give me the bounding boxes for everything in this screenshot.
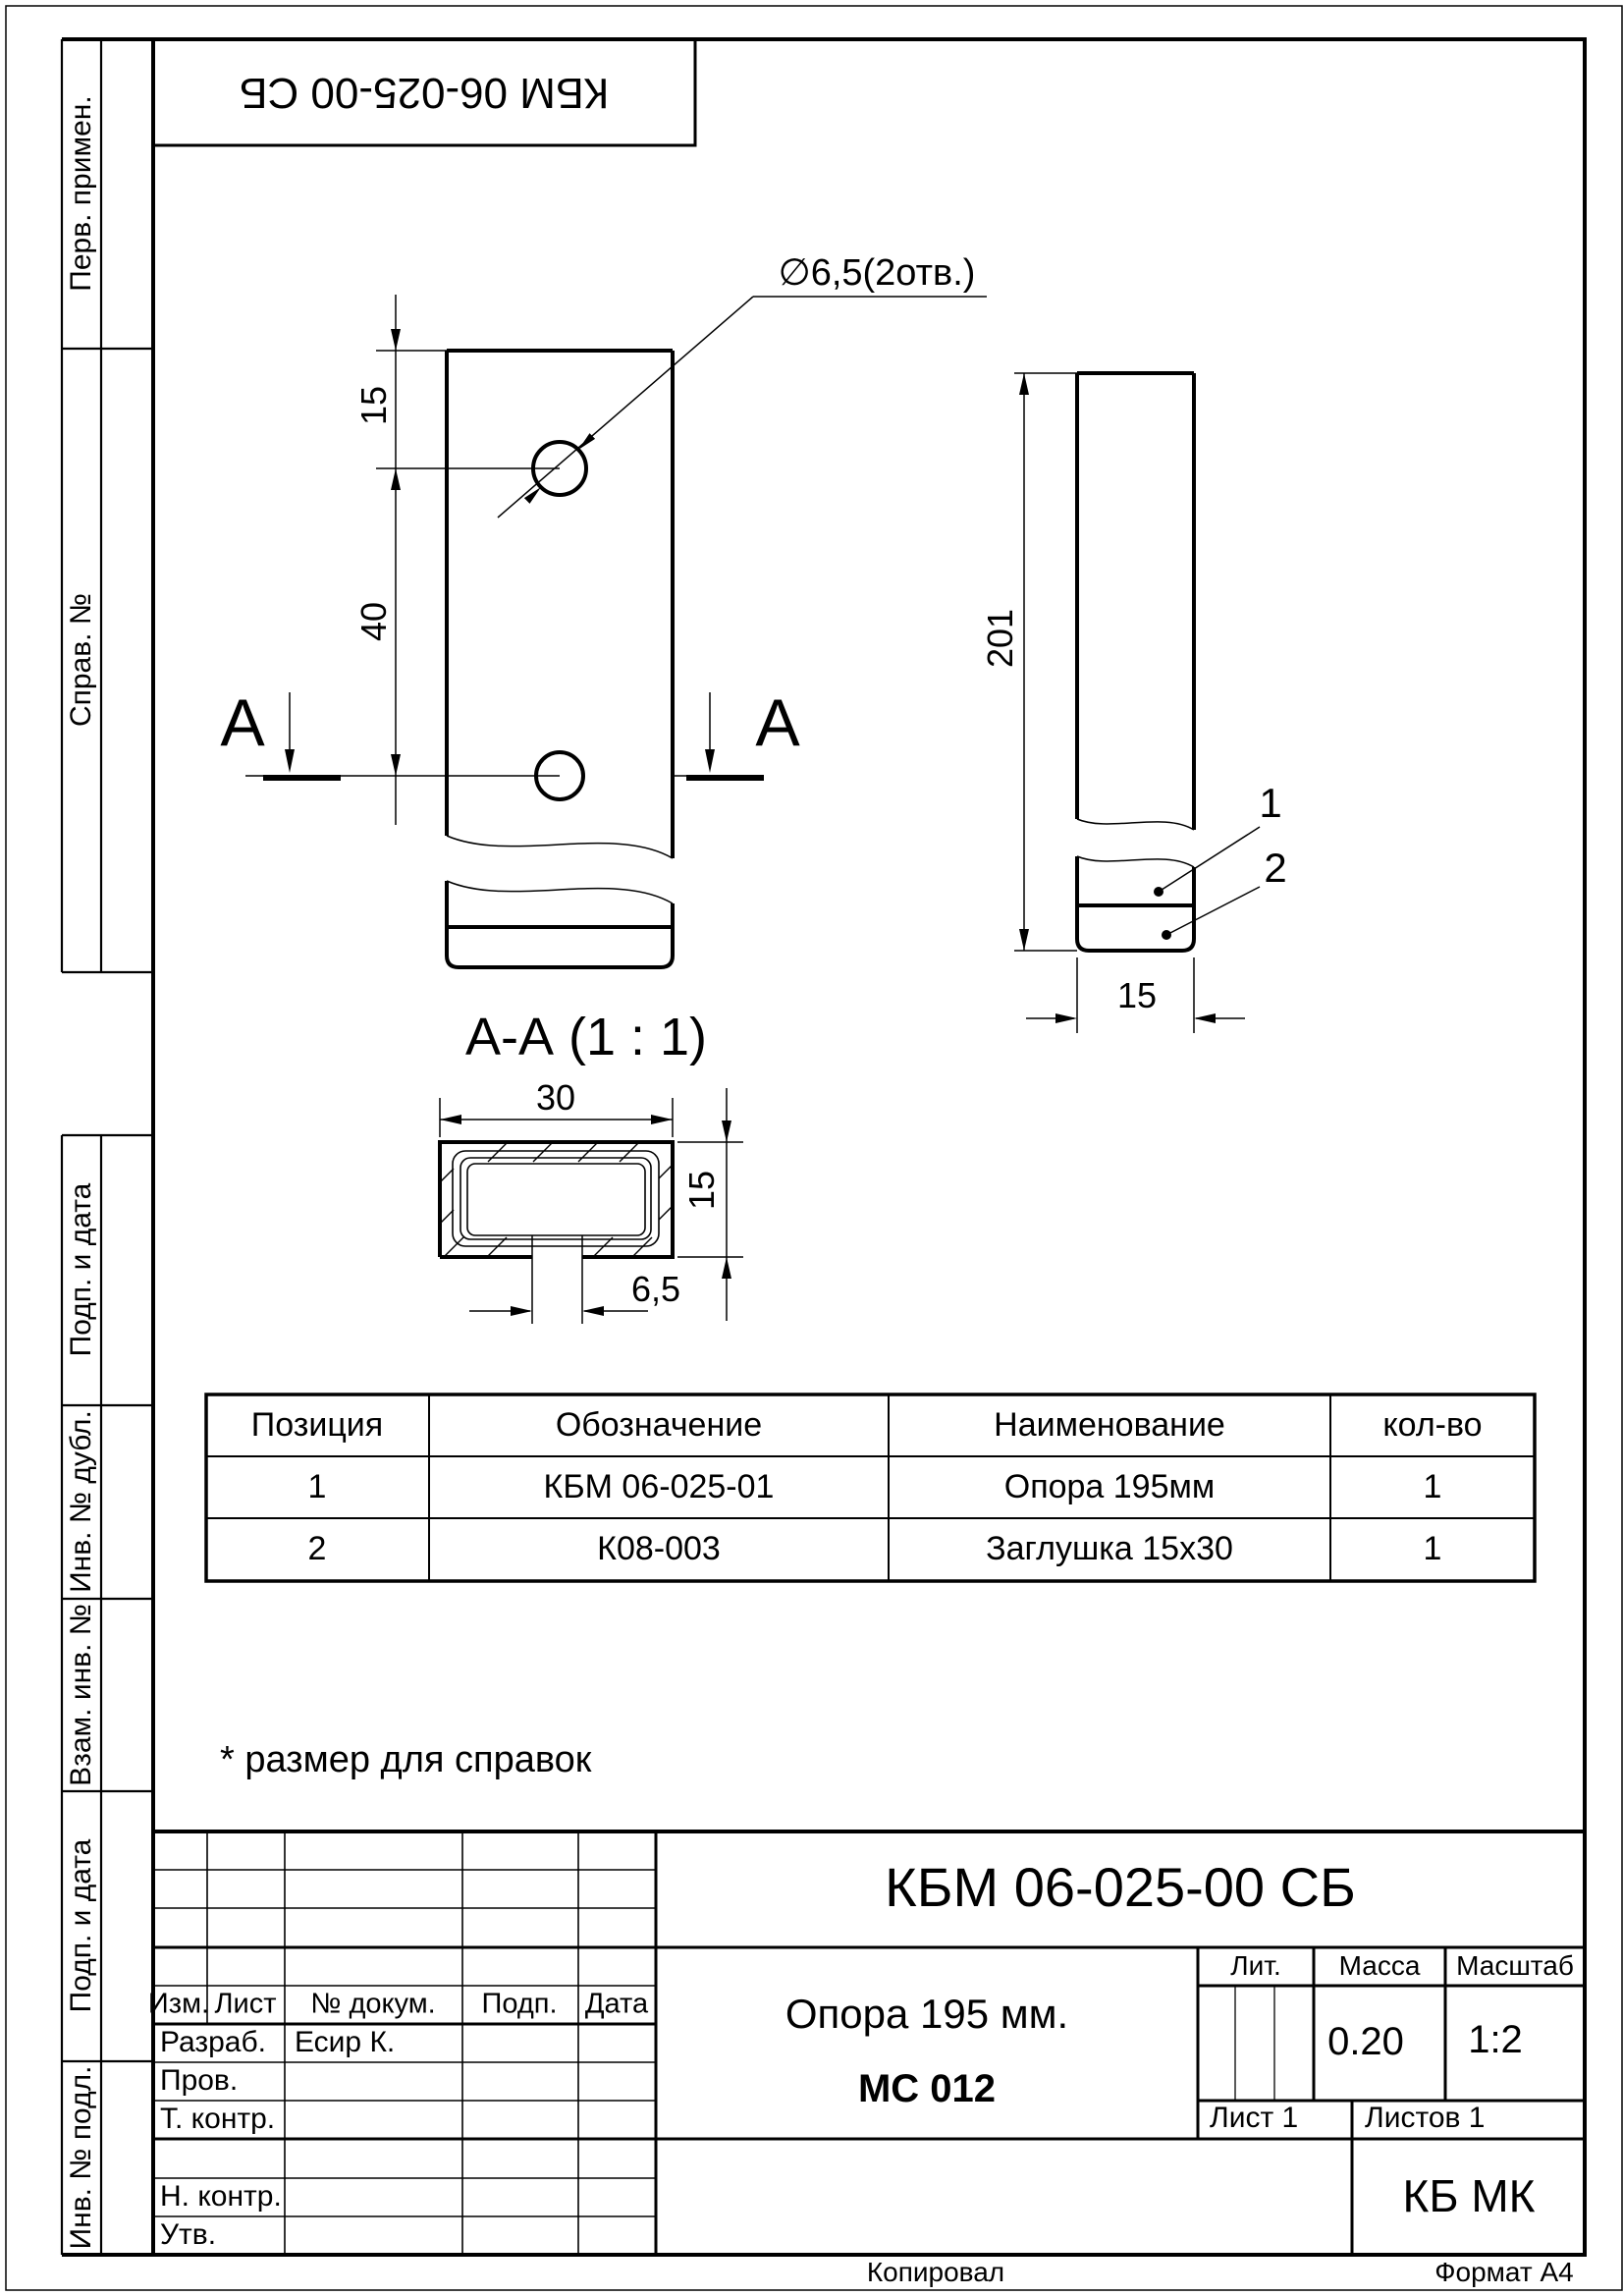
title-block-row-n-kontr: Н. контр. xyxy=(160,2182,282,2212)
table-row: К08-003 xyxy=(597,1532,721,1565)
margin-label-podp-i-data-2: Подп. и дата xyxy=(67,1839,96,2013)
table-header-position: Позиция xyxy=(251,1408,383,1442)
margin-label-podp-i-data-1: Подп. и дата xyxy=(67,1183,96,1357)
margin-label-perv-primen: Перв. примен. xyxy=(67,95,96,291)
dim-30: 30 xyxy=(536,1080,575,1116)
title-block-part-name: Опора 195 мм. xyxy=(785,1994,1068,2035)
title-block-header-list: Лист xyxy=(214,1991,276,2019)
parts-table-grid xyxy=(206,1394,1535,1581)
title-block-header-izm: Изм. xyxy=(148,1991,209,2019)
reference-note: * размер для справок xyxy=(220,1741,591,1778)
title-block-company: КБ МК xyxy=(1403,2173,1536,2218)
position-number-1: 1 xyxy=(1259,783,1281,824)
table-row: 1 xyxy=(1424,1532,1442,1565)
dim-40: 40 xyxy=(356,602,392,641)
title-block-row-razrab: Разраб. xyxy=(160,2028,266,2057)
margin-label-sprav-no: Справ. № xyxy=(67,593,96,727)
margin-label-inv-no-podl: Инв. № подл. xyxy=(67,2066,96,2250)
table-row: 2 xyxy=(308,1532,327,1565)
title-block-scale-value: 1:2 xyxy=(1468,2020,1523,2059)
title-block-sheet: Лист 1 xyxy=(1210,2104,1298,2133)
table-row: КБМ 06-025-01 xyxy=(544,1470,775,1503)
section-letter-left: А xyxy=(220,689,264,756)
footer-format-label: Формат А4 xyxy=(1434,2259,1574,2286)
title-block-part-code: МС 012 xyxy=(858,2069,996,2108)
title-block-scale-label: Масштаб xyxy=(1456,1952,1574,1980)
section-letter-right: А xyxy=(755,689,799,756)
dim-15-top: 15 xyxy=(356,386,392,425)
position-number-2: 2 xyxy=(1264,847,1286,889)
margin-label-vzam-inv-no: Взам. инв. № xyxy=(67,1604,96,1786)
title-block-mass-label: Масса xyxy=(1339,1952,1421,1980)
table-row: Заглушка 15х30 xyxy=(986,1532,1233,1565)
title-block-mass-value: 0.20 xyxy=(1327,2022,1404,2061)
drawing-sheet: КБМ 06-025-00 СБ Перв. примен. Справ. № … xyxy=(0,0,1623,2296)
title-block-developer-name: Есир К. xyxy=(295,2028,395,2057)
footer-copied-label: Копировал xyxy=(867,2259,1004,2286)
margin-label-inv-no-dubl: Инв. № дубл. xyxy=(67,1410,96,1593)
hole-diameter-callout: ∅6,5(2отв.) xyxy=(779,254,976,292)
title-block-row-prov: Пров. xyxy=(160,2066,238,2096)
stamp-doc-number-mirrored: КБМ 06-025-00 СБ xyxy=(240,71,610,114)
table-header-name: Наименование xyxy=(994,1408,1225,1442)
dim-15-section: 15 xyxy=(684,1171,720,1210)
title-block-row-t-kontr: Т. контр. xyxy=(160,2105,275,2134)
title-block-header-data: Дата xyxy=(585,1991,648,2019)
table-header-designation: Обозначение xyxy=(556,1408,762,1442)
dim-6-5: 6,5 xyxy=(631,1272,680,1307)
section-title: А-А (1 : 1) xyxy=(465,1011,707,1064)
title-block-designation: КБМ 06-025-00 СБ xyxy=(885,1860,1356,1915)
table-row: Опора 195мм xyxy=(1004,1470,1216,1503)
title-block-row-utv: Утв. xyxy=(160,2220,216,2250)
title-block-sheets: Листов 1 xyxy=(1365,2104,1486,2133)
title-block-header-ndokum: № докум. xyxy=(310,1991,435,2019)
dim-201: 201 xyxy=(983,609,1018,668)
table-row: 1 xyxy=(308,1470,327,1503)
table-header-qty: кол-во xyxy=(1382,1408,1482,1442)
table-row: 1 xyxy=(1424,1470,1442,1503)
side-view xyxy=(1014,373,1260,1033)
title-block-lit-label: Лит. xyxy=(1230,1952,1281,1980)
dim-15-side: 15 xyxy=(1117,978,1157,1013)
title-block-header-podp: Подп. xyxy=(481,1991,557,2019)
